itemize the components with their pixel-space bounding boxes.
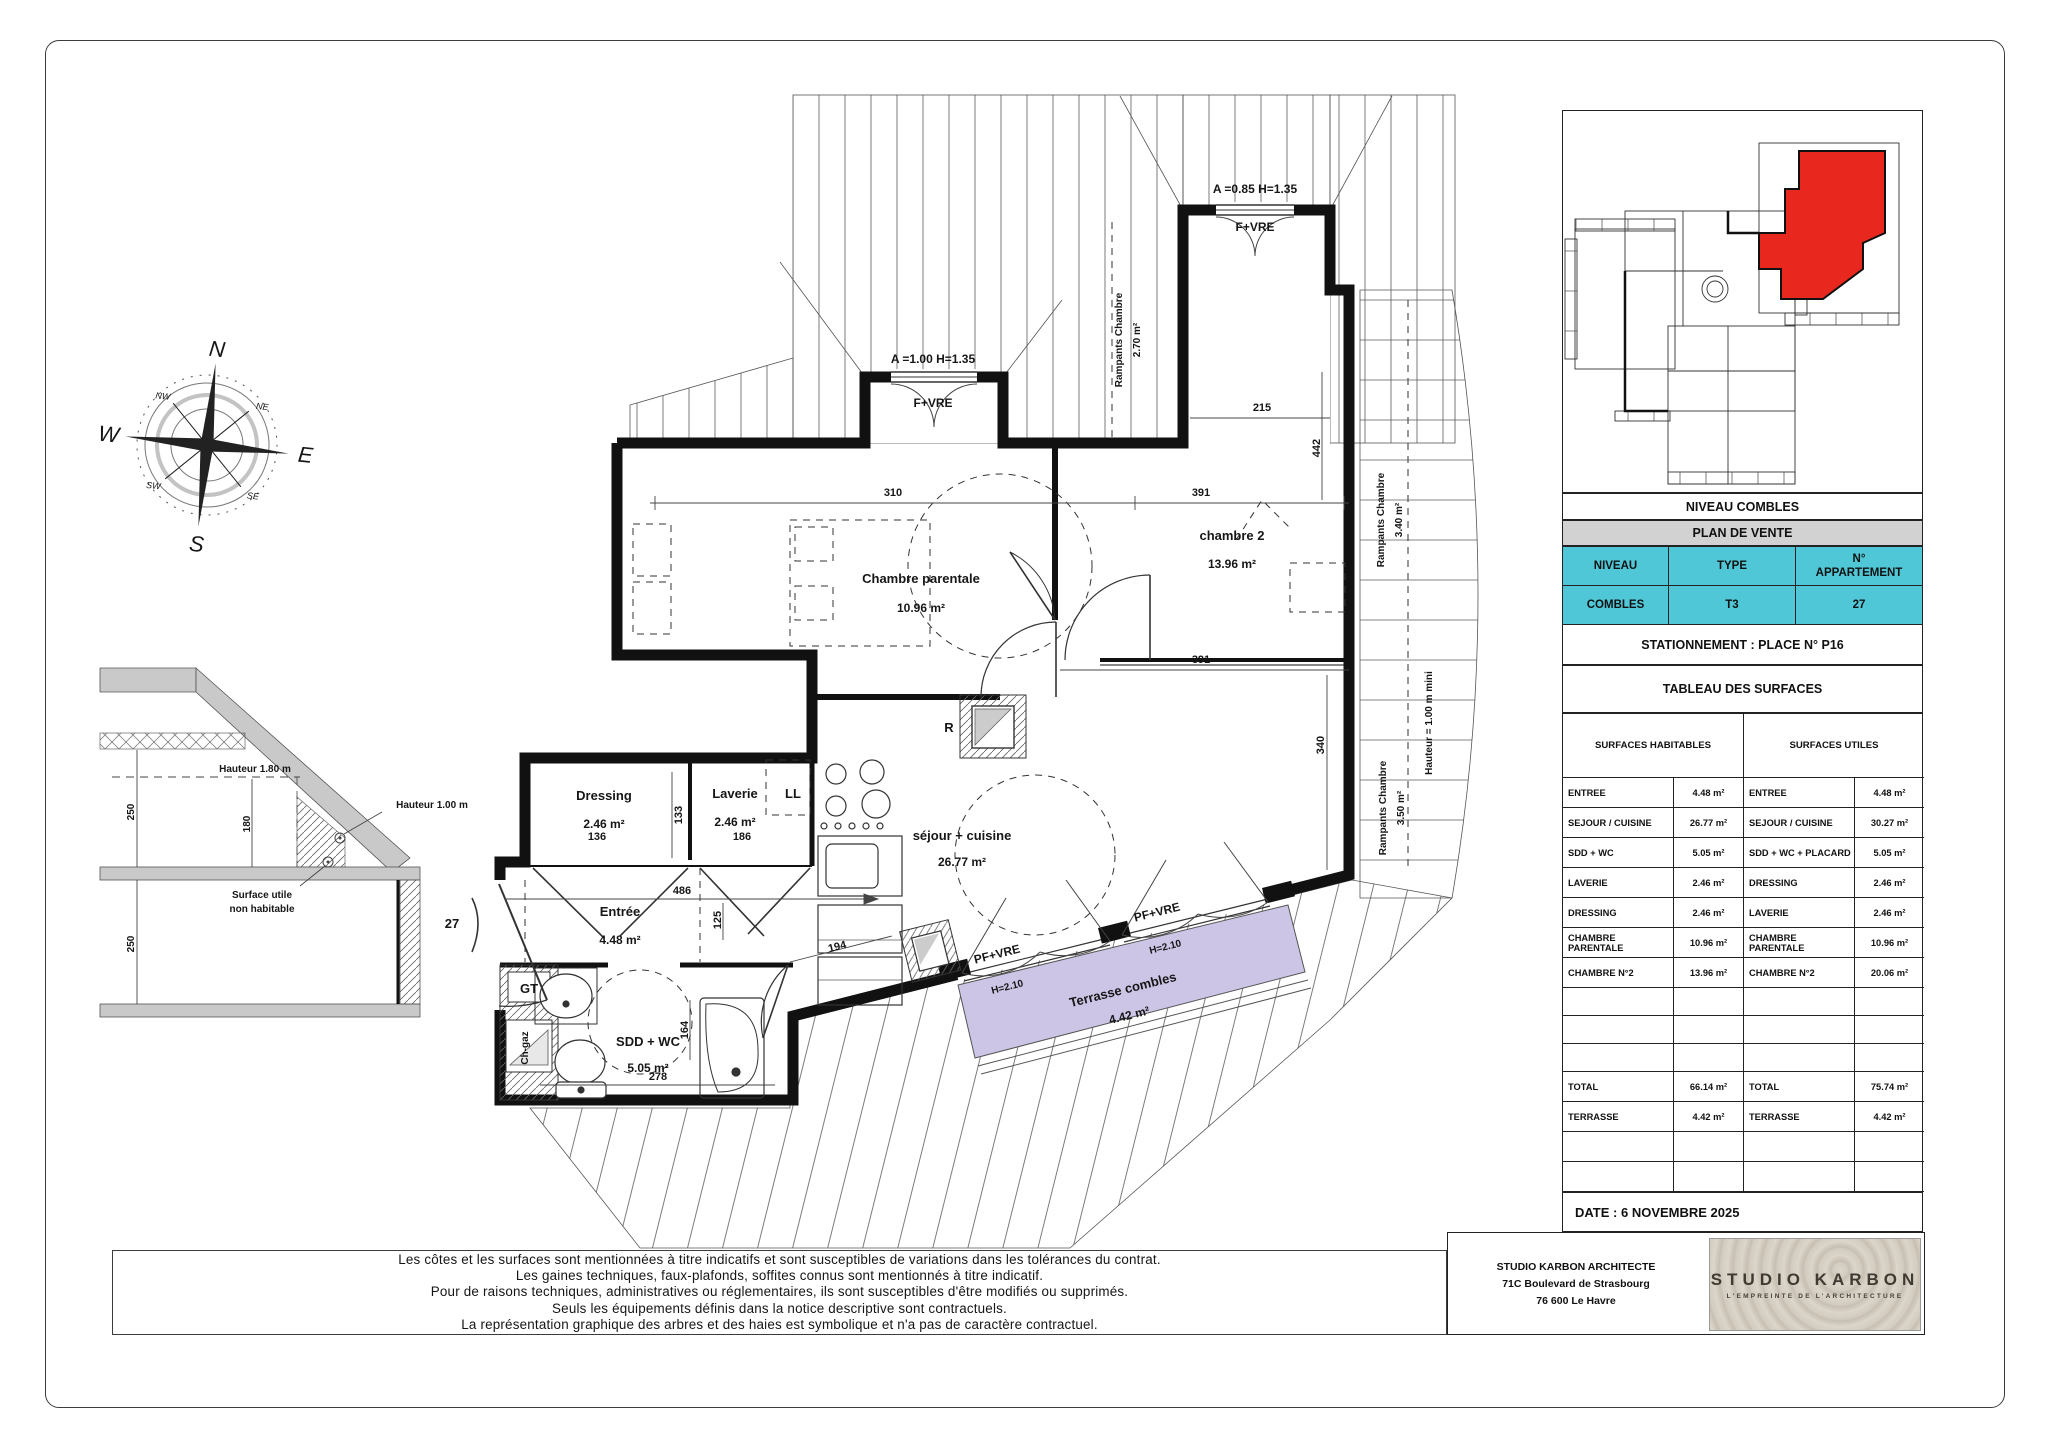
hab-label: SEJOUR / CUISINE	[1563, 808, 1674, 838]
section-d180: 180	[242, 815, 253, 832]
label-door-number: 27	[445, 916, 459, 931]
table-row-empty	[1563, 1016, 1922, 1044]
surfaces-table: SURFACES HABITABLES SURFACES UTILES ENTR…	[1562, 713, 1923, 1192]
architect-logo-cell: STUDIO KARBON L'EMPREINTE DE L'ARCHITECT…	[1704, 1233, 1924, 1334]
util-value: 30.27 m²	[1855, 808, 1924, 838]
table-row-empty	[1563, 1162, 1922, 1192]
hab-label: LAVERIE	[1563, 868, 1674, 898]
section-d250b: 250	[126, 935, 137, 952]
label-rampants2-l1: Rampants Chambre	[1376, 472, 1387, 567]
header-apartment: N° APPARTEMENT	[1795, 546, 1923, 586]
util-label: CHAMBRE PARENTALE	[1744, 928, 1855, 958]
key-plan-inset	[1562, 110, 1923, 493]
util-total-label: TOTAL	[1744, 1072, 1855, 1102]
util-label: ENTREE	[1744, 778, 1855, 808]
dim-186: 186	[733, 831, 751, 843]
label-rampants3-l2: 3.50 m²	[1396, 790, 1407, 825]
room-chambre2-name: chambre 2	[1199, 528, 1264, 543]
label-hauteur-mini: Hauteur = 1.00 m mini	[1424, 671, 1435, 775]
util-label: LAVERIE	[1744, 898, 1855, 928]
dim-486: 486	[673, 885, 691, 897]
value-niveau: COMBLES	[1562, 586, 1668, 625]
util-label: SDD + WC + PLACARD	[1744, 838, 1855, 868]
hab-label: ENTREE	[1563, 778, 1674, 808]
disclaimer-line: Seuls les équipements définis dans la no…	[113, 1301, 1446, 1317]
date-text: DATE : 6 NOVEMBRE 2025	[1575, 1205, 1739, 1220]
dim-125: 125	[712, 911, 724, 929]
label-fvre-1: F+VRE	[913, 396, 952, 410]
value-type: T3	[1668, 586, 1795, 625]
section-h180: Hauteur 1.80 m	[219, 764, 291, 775]
dim-340: 340	[1315, 736, 1327, 754]
label-rampants3-l1: Rampants Chambre	[1378, 760, 1389, 855]
compass-rose: N S W E NW NE SW SE	[87, 325, 325, 567]
disclaimer-line: Les côtes et les surfaces sont mentionné…	[113, 1252, 1446, 1268]
duct-terrace-end	[900, 920, 961, 983]
label-ll: LL	[785, 786, 801, 801]
hab-value: 10.96 m²	[1674, 928, 1744, 958]
util-label: SEJOUR / CUISINE	[1744, 808, 1855, 838]
hab-value: 4.48 m²	[1674, 778, 1744, 808]
util-label: CHAMBRE N°2	[1744, 958, 1855, 988]
hab-total-value: 66.14 m²	[1674, 1072, 1744, 1102]
section-surface-l1: Surface utile	[232, 890, 292, 901]
surfaces-table-header: SURFACES HABITABLES SURFACES UTILES	[1563, 714, 1922, 778]
hab-total-label: TOTAL	[1563, 1072, 1674, 1102]
compass-s: S	[188, 531, 206, 557]
room-sejour-area: 26.77 m²	[938, 855, 986, 869]
label-a085: A =0.85 H=1.35	[1213, 182, 1298, 196]
hab-label: DRESSING	[1563, 898, 1674, 928]
util-value: 2.46 m²	[1855, 868, 1924, 898]
table-row: SEJOUR / CUISINE26.77 m² SEJOUR / CUISIN…	[1563, 808, 1922, 838]
surfaces-title-text: TABLEAU DES SURFACES	[1663, 682, 1823, 696]
table-row-total: TOTAL66.14 m² TOTAL75.74 m²	[1563, 1072, 1922, 1102]
apartment-table-values: COMBLES T3 27	[1562, 586, 1923, 625]
util-total-value: 75.74 m²	[1855, 1072, 1924, 1102]
hab-value: 5.05 m²	[1674, 838, 1744, 868]
logo-subtitle: L'EMPREINTE DE L'ARCHITECTURE	[1727, 1293, 1904, 1300]
label-rampants1-l1: Rampants Chambre	[1114, 292, 1125, 387]
hab-value: 2.46 m²	[1674, 868, 1744, 898]
room-chambre2-area: 13.96 m²	[1208, 557, 1256, 571]
header-apartment-line1: N°	[1853, 552, 1866, 566]
room-entree-area: 4.48 m²	[599, 933, 640, 947]
architect-address: STUDIO KARBON ARCHITECTE 71C Boulevard d…	[1448, 1233, 1704, 1334]
room-dressing-area: 2.46 m²	[583, 817, 624, 831]
dim-215: 215	[1253, 402, 1271, 414]
architect-city: 76 600 Le Havre	[1536, 1295, 1615, 1307]
room-entree-name: Entrée	[600, 904, 640, 919]
value-niveau-text: COMBLES	[1587, 598, 1645, 612]
dim-442: 442	[1311, 439, 1323, 457]
disclaimer-line: Les gaines techniques, faux-plafonds, so…	[113, 1268, 1446, 1284]
table-row: ENTREE4.48 m² ENTREE4.48 m²	[1563, 778, 1922, 808]
hab-label: CHAMBRE N°2	[1563, 958, 1674, 988]
dim-133: 133	[673, 806, 685, 824]
label-rampants2-l2: 3.40 m²	[1394, 502, 1405, 537]
date-field: DATE : 6 NOVEMBRE 2025	[1562, 1192, 1923, 1232]
disclaimer-line: Pour de raisons techniques, administrati…	[113, 1284, 1446, 1300]
plan-de-vente-header: PLAN DE VENTE	[1562, 520, 1923, 546]
disclaimer-line: La représentation graphique des arbres e…	[113, 1317, 1446, 1333]
dim-391b: 391	[1192, 654, 1210, 666]
table-row: LAVERIE2.46 m² DRESSING2.46 m²	[1563, 868, 1922, 898]
table-row-terrasse: TERRASSE4.42 m² TERRASSE4.42 m²	[1563, 1102, 1922, 1132]
room-sdd-name: SDD + WC	[616, 1034, 681, 1049]
label-chgaz: Ch-gaz	[520, 1031, 531, 1064]
header-apartment-line2: APPARTEMENT	[1816, 566, 1903, 580]
dim-310: 310	[884, 487, 902, 499]
label-rampants1-l2: 2.70 m²	[1132, 322, 1143, 357]
room-laverie-name: Laverie	[712, 786, 758, 801]
flue-conduit	[960, 695, 1026, 758]
compass-nw: NW	[155, 390, 172, 402]
header-niveau: NIVEAU	[1562, 546, 1668, 586]
parking-info: STATIONNEMENT : PLACE N° P16	[1562, 625, 1923, 665]
compass-sw: SW	[146, 480, 163, 492]
dim-164: 164	[679, 1020, 691, 1039]
hab-value: 26.77 m²	[1674, 808, 1744, 838]
room-parentale-area: 10.96 m²	[897, 601, 945, 615]
interior-walls	[500, 443, 1349, 965]
util-value: 2.46 m²	[1855, 898, 1924, 928]
header-type: TYPE	[1668, 546, 1795, 586]
section-h100: Hauteur 1.00 m	[396, 800, 468, 811]
inset-title: NIVEAU COMBLES	[1562, 493, 1923, 520]
table-row: SDD + WC5.05 m² SDD + WC + PLACARD5.05 m…	[1563, 838, 1922, 868]
surfaces-title: TABLEAU DES SURFACES	[1562, 665, 1923, 713]
compass-w: W	[97, 421, 122, 448]
label-fvre-2: F+VRE	[1235, 220, 1274, 234]
disclaimer-box: Les côtes et les surfaces sont mentionné…	[112, 1250, 1447, 1335]
util-terrasse-label: TERRASSE	[1744, 1102, 1855, 1132]
room-sejour-name: séjour + cuisine	[913, 828, 1012, 843]
key-plan-drawing	[1563, 111, 1922, 492]
table-row: DRESSING2.46 m² LAVERIE2.46 m²	[1563, 898, 1922, 928]
hab-terrasse-label: TERRASSE	[1563, 1102, 1674, 1132]
value-apartment: 27	[1795, 586, 1923, 625]
table-row-empty	[1563, 988, 1922, 1016]
compass-n: N	[208, 336, 227, 363]
table-row: CHAMBRE N°213.96 m² CHAMBRE N°220.06 m²	[1563, 958, 1922, 988]
util-value: 5.05 m²	[1855, 838, 1924, 868]
logo-title: STUDIO KARBON	[1711, 1270, 1920, 1290]
section-d250a: 250	[126, 803, 137, 820]
dim-391a: 391	[1192, 487, 1210, 499]
studio-karbon-logo: STUDIO KARBON L'EMPREINTE DE L'ARCHITECT…	[1709, 1238, 1921, 1331]
compass-se: SE	[246, 490, 260, 501]
dim-136: 136	[588, 831, 606, 843]
kitchen-fixtures	[818, 760, 902, 1005]
value-apartment-text: 27	[1853, 598, 1866, 612]
util-header: SURFACES UTILES	[1744, 714, 1924, 778]
header-type-text: TYPE	[1717, 559, 1747, 573]
section-surface-l2: non habitable	[230, 904, 295, 915]
label-r: R	[944, 720, 954, 735]
value-type-text: T3	[1725, 598, 1738, 612]
hab-label: CHAMBRE PARENTALE	[1563, 928, 1674, 958]
util-value: 10.96 m²	[1855, 928, 1924, 958]
hab-value: 13.96 m²	[1674, 958, 1744, 988]
architect-block: STUDIO KARBON ARCHITECTE 71C Boulevard d…	[1447, 1232, 1925, 1335]
plan-de-vente-text: PLAN DE VENTE	[1692, 526, 1792, 540]
highlighted-unit	[1759, 151, 1885, 299]
dim-278: 278	[649, 1071, 667, 1083]
apartment-table-header: NIVEAU TYPE N° APPARTEMENT	[1562, 546, 1923, 586]
room-parentale-name: Chambre parentale	[862, 571, 980, 586]
table-row-empty	[1563, 1132, 1922, 1162]
label-gt: GT	[520, 981, 538, 996]
hab-label: SDD + WC	[1563, 838, 1674, 868]
util-value: 4.48 m²	[1855, 778, 1924, 808]
compass-e: E	[297, 442, 315, 468]
section-detail: Hauteur 1.80 m Hauteur 1.00 m Surface ut…	[100, 668, 468, 1017]
label-a100: A =1.00 H=1.35	[891, 352, 976, 366]
table-row-empty	[1563, 1044, 1922, 1072]
room-dressing-name: Dressing	[576, 788, 632, 803]
room-laverie-area: 2.46 m²	[714, 815, 755, 829]
table-row: CHAMBRE PARENTALE10.96 m² CHAMBRE PARENT…	[1563, 928, 1922, 958]
roof-hatching	[530, 95, 1478, 1248]
parking-info-text: STATIONNEMENT : PLACE N° P16	[1641, 638, 1843, 652]
util-value: 20.06 m²	[1855, 958, 1924, 988]
compass-ne: NE	[256, 401, 270, 412]
util-label: DRESSING	[1744, 868, 1855, 898]
hab-header: SURFACES HABITABLES	[1563, 714, 1744, 778]
inset-title-text: NIVEAU COMBLES	[1686, 500, 1799, 514]
architect-street: 71C Boulevard de Strasbourg	[1502, 1278, 1650, 1290]
header-niveau-text: NIVEAU	[1594, 559, 1637, 573]
util-terrasse-value: 4.42 m²	[1855, 1102, 1924, 1132]
architect-name: STUDIO KARBON ARCHITECTE	[1497, 1261, 1656, 1273]
hab-value: 2.46 m²	[1674, 898, 1744, 928]
hab-terrasse-value: 4.42 m²	[1674, 1102, 1744, 1132]
